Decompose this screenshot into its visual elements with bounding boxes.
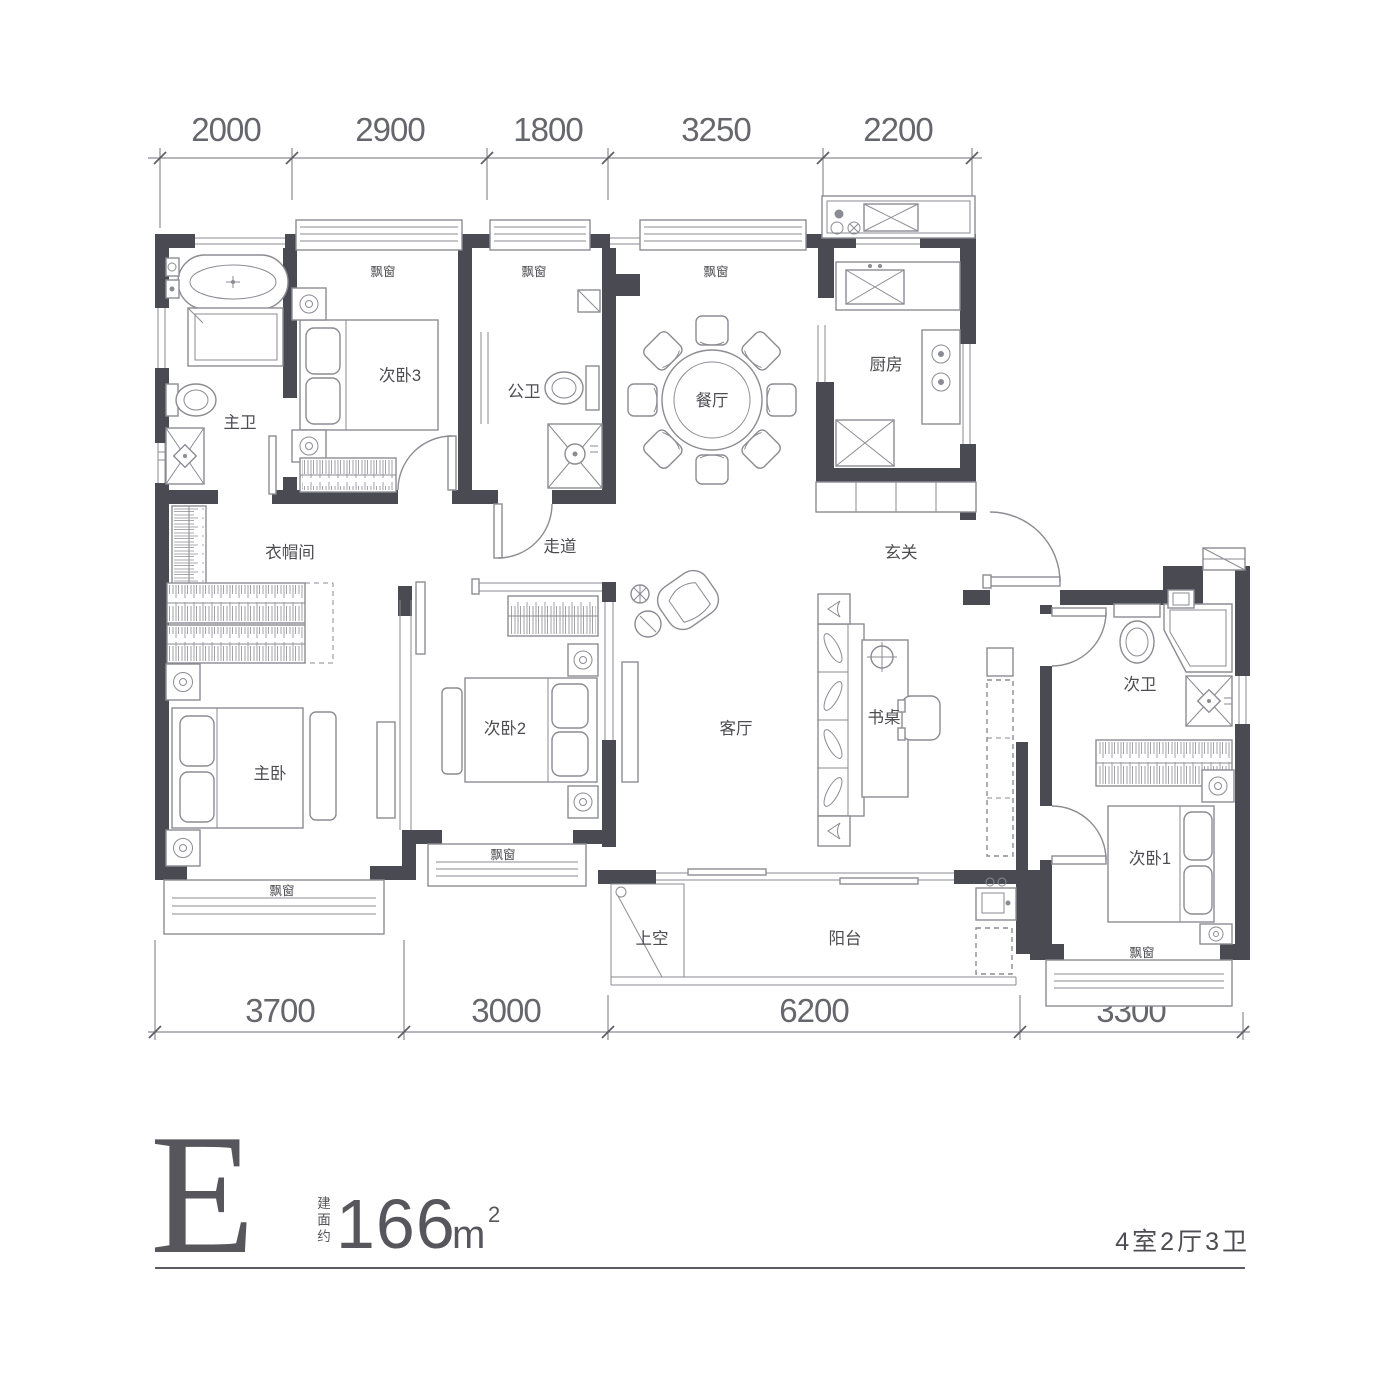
second-bath-fixtures: [1096, 590, 1232, 786]
bay-window-label: 飘窗: [703, 265, 728, 279]
balcony-railing: [611, 977, 1016, 985]
room-label-desk: 书桌: [868, 708, 901, 727]
nightstand-icon: [1200, 924, 1232, 944]
toilet-icon: [545, 366, 599, 410]
armchair-icon: [651, 564, 724, 635]
room-label-master-bath: 主卫: [224, 413, 257, 432]
room-label-corridor: 走道: [544, 537, 577, 556]
wardrobe-icon: [300, 458, 396, 492]
balcony-sink-icon: [976, 878, 1016, 974]
balcony-sliding-door: [656, 869, 954, 884]
room-label-second-bath: 次卫: [1124, 675, 1157, 694]
kitchen-sink-icon: [836, 262, 960, 310]
bedroom3-furniture: [292, 288, 438, 492]
shaft-icon: [1168, 590, 1194, 608]
area-value: 166: [336, 1185, 456, 1263]
dim-top-4: 3250: [681, 111, 751, 148]
nightstand-icon: [166, 830, 200, 866]
layout-spec: 4室2厅3卫: [1115, 1228, 1250, 1256]
bedroom3-door-icon: [398, 436, 456, 490]
room-label-void: 上空: [636, 929, 669, 948]
balcony-features: [611, 878, 1016, 977]
bay-window-bedroom1: [1046, 960, 1232, 1006]
room-label-master-bedroom: 主卧: [254, 764, 287, 783]
title-block: E 166 m 2 4室2厅3卫: [150, 1100, 1250, 1290]
toilet-icon: [1114, 604, 1160, 663]
bay-window-label: 飘窗: [370, 265, 395, 279]
area-unit: m: [452, 1213, 485, 1257]
fridge-icon: [836, 420, 894, 466]
nightstand-icon: [568, 644, 598, 676]
bay-window-label: 飘窗: [1129, 946, 1154, 960]
room-label-dining: 餐厅: [696, 391, 729, 410]
area-superscript: 2: [488, 1202, 500, 1227]
sofa-end-table-icon: [818, 816, 850, 846]
wardrobe-icon: [167, 625, 305, 663]
bay-window-label: 飘窗: [521, 265, 546, 279]
entry-door-icon: [983, 512, 1060, 588]
bay-window-label: 飘窗: [490, 848, 515, 862]
room-label-bedroom3: 次卧3: [379, 366, 421, 385]
sofa-end-table-icon: [818, 594, 850, 624]
room-label-cloakroom: 衣帽间: [265, 543, 315, 562]
bench-icon: [310, 712, 336, 820]
shower-icon: [188, 308, 283, 366]
room-label-balcony: 阳台: [829, 929, 862, 948]
shower-icon: [1164, 604, 1232, 672]
bedroom1-door-icon: [1052, 806, 1106, 864]
nightstand-icon: [292, 430, 326, 462]
public-bath-fixtures: [545, 290, 602, 488]
room-label-kitchen: 厨房: [870, 355, 903, 374]
dim-bottom-1: 3700: [245, 992, 315, 1029]
bench-icon: [442, 688, 462, 774]
dim-bottom-2: 3000: [471, 992, 541, 1029]
secondbath-door-icon: [1052, 608, 1106, 666]
room-label-bedroom1: 次卧1: [1129, 849, 1171, 868]
kitchen-cabinets: [816, 482, 976, 512]
equipment-platform: [822, 196, 975, 238]
dim-top-2: 2900: [355, 111, 425, 148]
sofa-icon: [818, 624, 864, 816]
wardrobe-icon: [172, 506, 206, 584]
living-furniture: [631, 564, 1013, 856]
dim-top-3: 1800: [513, 111, 583, 148]
plan-letter: E: [150, 1100, 255, 1290]
plant-icon: [631, 585, 649, 603]
nightstand-icon: [568, 786, 598, 818]
wardrobe-icon: [167, 583, 305, 623]
floorplan-canvas: 2000 2900 1800 3250 2200 3700 3000 6200 …: [0, 0, 1400, 1400]
room-label-foyer: 玄关: [885, 543, 918, 562]
storage-cabinet-icon: [987, 648, 1013, 856]
shelf-icon: [578, 290, 600, 312]
nightstand-icon: [292, 288, 326, 320]
cloakroom-furniture: [167, 506, 333, 663]
desk-chair-icon: [898, 696, 940, 740]
bay-window-label: 飘窗: [269, 884, 294, 898]
vanity-sink-icon: [1186, 676, 1232, 726]
wardrobe-icon: [508, 596, 598, 636]
toilet-icon: [166, 384, 216, 416]
foyer-duct-window: [1203, 548, 1245, 570]
vanity-sink-icon: [548, 424, 602, 488]
bay-window-top-dining: [640, 220, 806, 250]
dim-bottom-3: 6200: [779, 992, 849, 1029]
room-label-living: 客厅: [720, 719, 753, 738]
bay-window-top-bedroom3: [296, 220, 462, 250]
side-table-icon: [635, 611, 661, 637]
ac-unit-icon: [864, 204, 918, 231]
nightstand-icon: [1202, 770, 1234, 802]
room-label-bedroom2: 次卧2: [484, 719, 526, 738]
bathtub-icon: [178, 255, 288, 309]
dresser-icon: [377, 722, 395, 818]
tv-cabinet-icon: [622, 662, 638, 782]
dim-top-1: 2000: [191, 111, 261, 148]
dim-top-5: 2200: [863, 111, 933, 148]
area-prefix-label: 建面约: [312, 1196, 332, 1246]
stove-icon: [922, 330, 960, 424]
nightstand-icon: [166, 664, 200, 700]
room-label-public-bath: 公卫: [508, 383, 541, 401]
bay-window-top-publicbath: [490, 220, 590, 250]
